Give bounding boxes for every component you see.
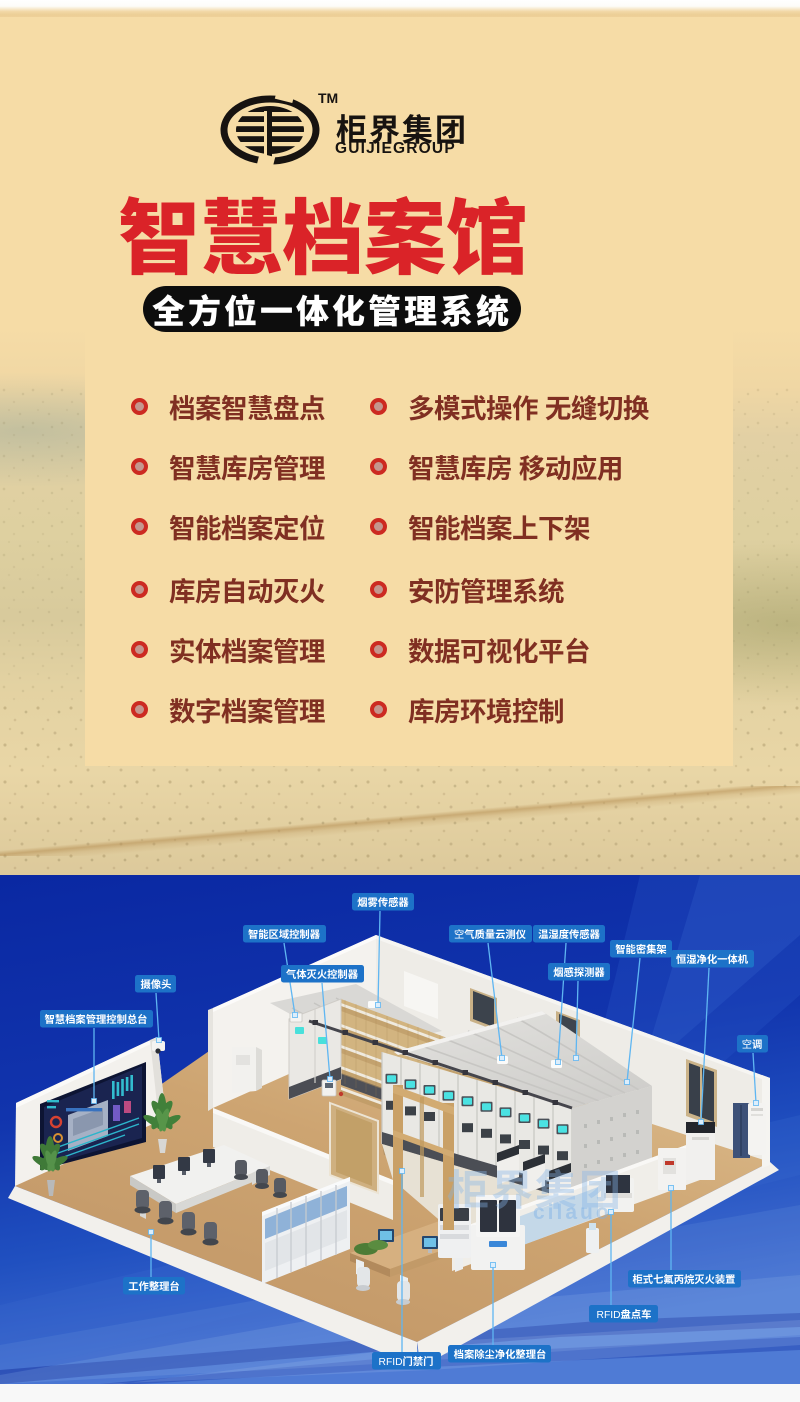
svg-text:RFID门禁门: RFID门禁门 [379,1353,434,1368]
svg-text:温湿度传感器: 温湿度传感器 [538,926,600,941]
svg-text:空调: 空调 [742,1036,763,1051]
svg-text:档案除尘净化整理台: 档案除尘净化整理台 [454,1346,547,1361]
svg-text:智慧档案管理控制总台: 智慧档案管理控制总台 [45,1011,148,1026]
svg-text:RFID盘点车: RFID盘点车 [597,1306,652,1321]
svg-text:恒湿净化一体机: 恒湿净化一体机 [676,951,749,966]
svg-text:气体灭火控制器: 气体灭火控制器 [286,966,359,981]
svg-text:智能区域控制器: 智能区域控制器 [248,926,321,941]
svg-text:cilauo: cilauo [533,1201,612,1224]
svg-text:工作整理台: 工作整理台 [128,1278,179,1293]
svg-text:摄像头: 摄像头 [141,976,172,991]
svg-text:智能密集架: 智能密集架 [615,941,666,956]
svg-text:烟雾传感器: 烟雾传感器 [357,894,409,909]
svg-text:空气质量云测仪: 空气质量云测仪 [454,926,527,941]
svg-text:柜式七氟丙烷灭火装置: 柜式七氟丙烷灭火装置 [633,1271,736,1286]
svg-text:烟感探测器: 烟感探测器 [553,964,605,979]
